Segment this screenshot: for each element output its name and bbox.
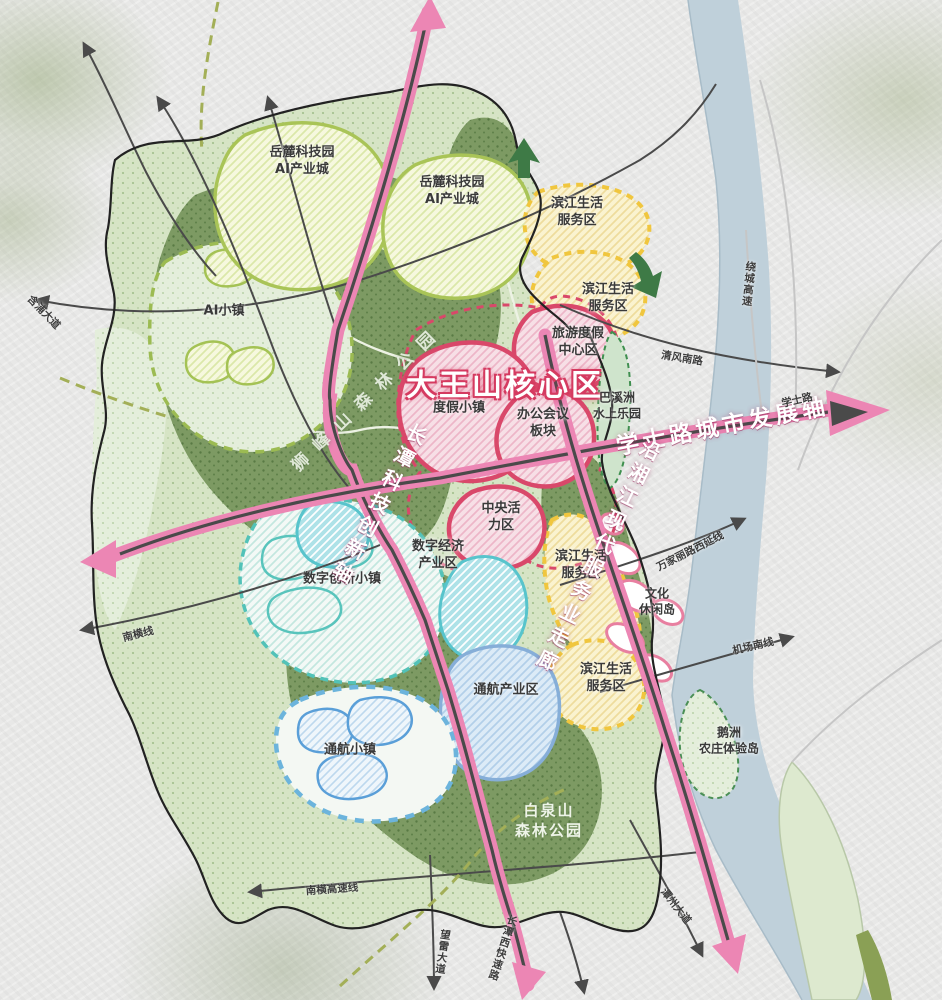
map-canvas bbox=[0, 0, 942, 1000]
planning-map: 岳麓科技园 AI产业城 岳麓科技园 AI产业城 AI小镇 滨江生活 服务区 滨江… bbox=[0, 0, 942, 1000]
road-south-exit bbox=[560, 912, 584, 992]
